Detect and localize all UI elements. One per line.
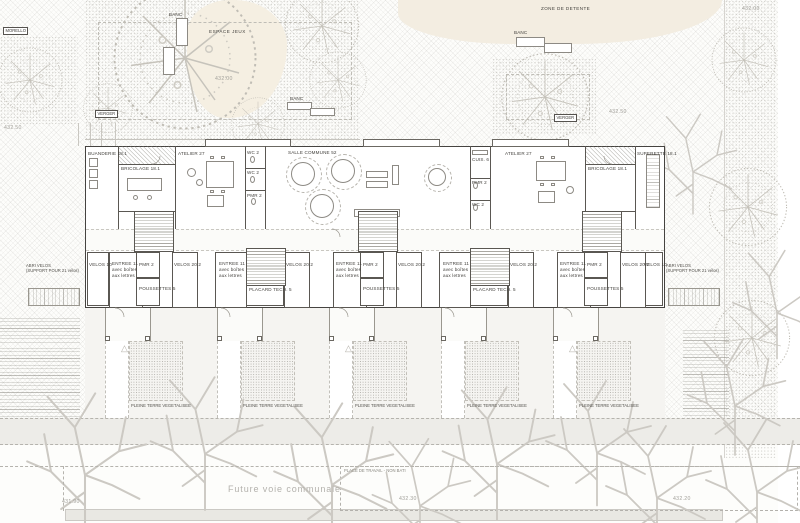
room-label-pmr: PMR 2 [247,193,262,199]
spot-elevation: 432.00 [215,76,233,82]
room-label-placard: PLACARD TECH. 5 [473,287,516,293]
room-label-velos: VELOS 20.2 [622,262,649,268]
room-label-velos: VELOS 20.2 [286,262,313,268]
room-label-atelier-right: ATELIER 27 [505,151,532,157]
pleine-terre-label: PLEINE TERRE VEGETALISEE [131,403,191,408]
room-label-velos: VELOS 20.2 [174,262,201,268]
room-label-entree: ENTREE 11 avec boîtes aux lettres [560,261,586,279]
spot-elevation: 431.90 [62,499,80,505]
pleine-terre-label: PLEINE TERRE VEGETALISEE [243,403,303,408]
spot-elevation: 432.00 [742,6,760,12]
banc-label: BANC [514,30,527,36]
spot-elevation: 432.50 [609,109,627,115]
banc-label: BANC [169,12,182,18]
room-label-salle-commune: SALLE COMMUNE 52 [288,150,337,156]
spot-elevation: 432.50 [4,125,22,131]
room-label-pmr: PMR 2 [363,262,378,268]
room-label-entree: ENTREE 11 avec boîtes aux lettres [219,261,245,279]
room-label-entree: ENTREE 11 avec boîtes aux lettres [443,261,469,279]
banc-label: BANC [290,96,303,102]
room-label-entree: ENTREE 11 avec boîtes aux lettres [112,261,138,279]
espace-jeux-label: ESPACE JEUX [209,29,246,35]
room-label-wc: WC 2 [247,170,259,176]
room-label-pmr: PMR 2 [587,262,602,268]
spot-elevation: 432.30 [399,496,417,502]
pleine-terre-label: PLEINE TERRE VEGETALISEE [355,403,415,408]
room-label-bricolage-right: BRICOLAGE 18.1 [588,166,627,172]
room-label-cuisine: CUIS. 6 [472,157,489,163]
verger-tag-left: VERGER [95,110,118,118]
room-label-pmr: PMR 2 [139,262,154,268]
room-label-placard: PLACARD TECH. 5 [249,287,292,293]
room-label-bricolage-left: BRICOLAGE 18.1 [121,166,160,172]
room-label-wc: WC 2 [247,150,259,156]
room-label-entree: ENTREE 11 avec boîtes aux lettres [336,261,362,279]
room-label-superette: SUPERETTE 18.1 [637,151,677,157]
site-plan-canvas: △ △ △ MORELLO VERGER VERGER ESPACE JEUX … [0,0,800,523]
room-label-velos: VELOS 20.2 [510,262,537,268]
zone-detente-label: ZONE DE DETENTE [541,6,590,12]
tree-tag: MORELLO [3,27,28,35]
verger-tag-right: VERGER [554,114,577,122]
spot-elevation: 432.20 [673,496,691,502]
room-label-pmr: PMR 2 [472,180,487,186]
room-label-poussettes: POUSSETTES 5 [587,286,624,292]
room-label-poussettes: POUSSETTES 5 [363,286,400,292]
abri-velos-label-left: ABRI VELOS (SUPPORT POUR 21 vélos) [26,263,79,274]
room-label-wc: WC 2 [472,202,484,208]
pleine-terre-label: PLEINE TERRE VEGETALISEE [579,403,639,408]
room-label-atelier-left: ATELIER 27 [178,151,205,157]
pleine-terre-label: PLEINE TERRE VEGETALISEE [467,403,527,408]
room-label-velos-end: VELOS 10 [89,262,112,268]
room-label-poussettes: POUSSETTES 5 [139,286,176,292]
room-label-velos: VELOS 20.2 [398,262,425,268]
abri-velos-label-right: ABRI VELOS (SUPPORT POUR 21 vélos) [666,263,719,274]
room-label-buanderie: BUANDERIE 18.1 [88,151,127,157]
future-voie-label: Future voie communale [228,484,341,494]
place-travail-label: PLACE DE TRAVAIL - NON BATI [344,468,406,473]
